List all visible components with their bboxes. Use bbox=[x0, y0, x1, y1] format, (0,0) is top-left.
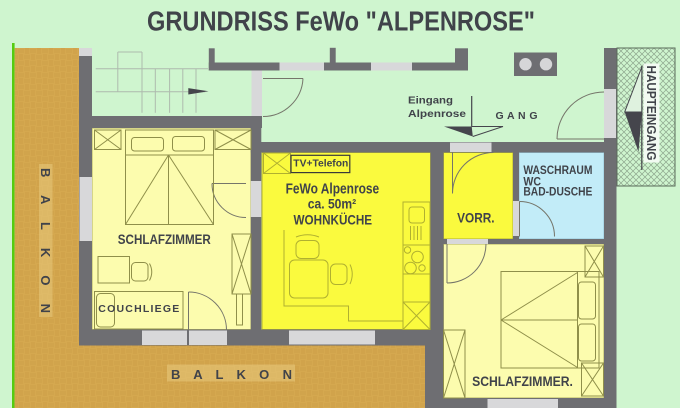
svg-text:BAD-DUSCHE: BAD-DUSCHE bbox=[523, 185, 592, 199]
svg-text:Alpenrose: Alpenrose bbox=[408, 109, 467, 120]
svg-text:VORR.: VORR. bbox=[457, 209, 495, 225]
svg-text:SCHLAFZIMMER.: SCHLAFZIMMER. bbox=[472, 374, 573, 389]
svg-text:ca. 50m²: ca. 50m² bbox=[308, 196, 357, 212]
svg-text:Eingang: Eingang bbox=[408, 96, 453, 107]
svg-text:G A N G: G A N G bbox=[496, 110, 538, 122]
svg-text:WOHNKÜCHE: WOHNKÜCHE bbox=[294, 212, 373, 227]
svg-text:HAUPTEINGANG: HAUPTEINGANG bbox=[644, 66, 658, 161]
svg-text:SCHLAFZIMMER: SCHLAFZIMMER bbox=[118, 232, 211, 247]
svg-text:GRUNDRISS FeWo "ALPENROSE": GRUNDRISS FeWo "ALPENROSE" bbox=[147, 6, 535, 37]
svg-text:TV+Telefon: TV+Telefon bbox=[293, 157, 348, 169]
svg-text:COUCHLIEGE: COUCHLIEGE bbox=[98, 303, 179, 315]
